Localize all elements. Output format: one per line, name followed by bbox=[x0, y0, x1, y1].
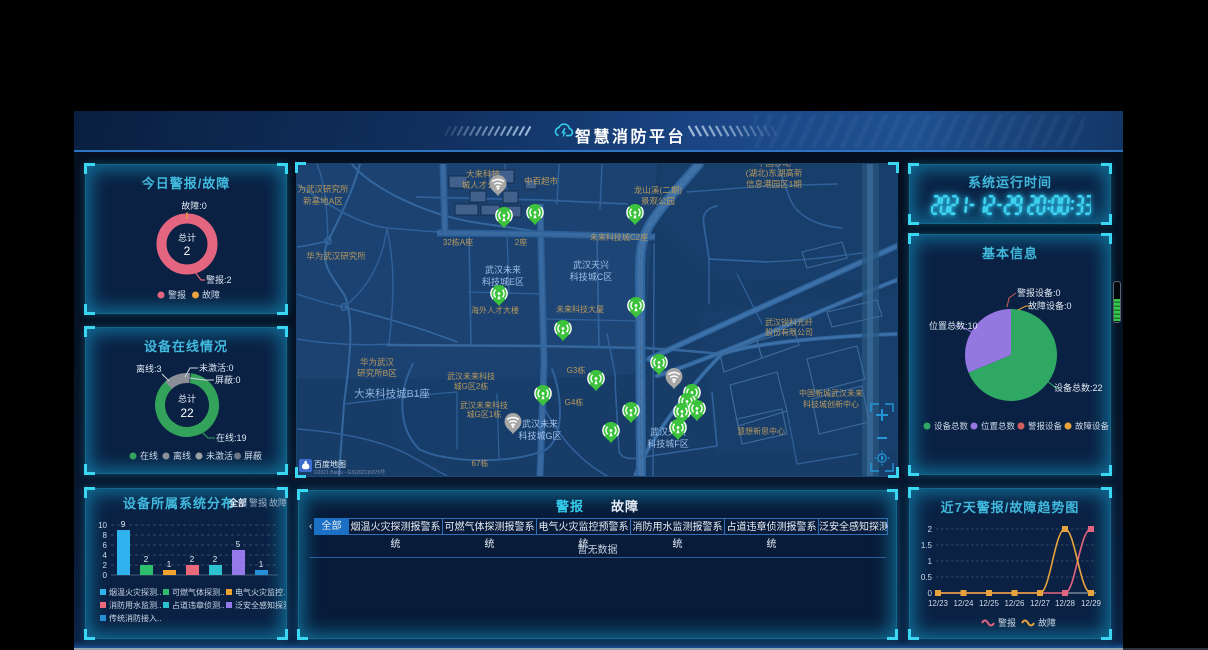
svg-text:2: 2 bbox=[928, 525, 933, 534]
svg-text:电气火灾监控..: 电气火灾监控.. bbox=[235, 587, 286, 597]
svg-text:2: 2 bbox=[184, 244, 191, 258]
svg-text:故障: 故障 bbox=[269, 497, 286, 508]
svg-text:8: 8 bbox=[103, 531, 108, 540]
svg-text:屏蔽: 屏蔽 bbox=[244, 450, 262, 461]
svg-text:6: 6 bbox=[103, 541, 108, 550]
svg-text:为武汉研究所: 为武汉研究所 bbox=[297, 184, 349, 194]
svg-text:0: 0 bbox=[928, 589, 933, 598]
svg-text:信息港园区1期: 信息港园区1期 bbox=[746, 179, 802, 189]
svg-text:离线:3: 离线:3 bbox=[136, 363, 162, 374]
svg-text:华为武汉研究所: 华为武汉研究所 bbox=[306, 251, 366, 261]
svg-text:位置总数:10: 位置总数:10 bbox=[929, 320, 978, 331]
svg-text:1.5: 1.5 bbox=[921, 541, 933, 550]
svg-text:2座: 2座 bbox=[515, 237, 527, 247]
svg-text:烟温火灾探测..: 烟温火灾探测.. bbox=[109, 587, 161, 597]
svg-text:武汉未来科技: 武汉未来科技 bbox=[460, 400, 508, 410]
svg-text:©2021 Baidu - GS(2021)6375号: ©2021 Baidu - GS(2021)6375号 bbox=[314, 469, 385, 476]
svg-text:科技城E区: 科技城E区 bbox=[482, 276, 524, 287]
svg-text:中百超市: 中百超市 bbox=[524, 176, 559, 186]
svg-text:城G区1栋: 城G区1栋 bbox=[467, 409, 502, 419]
svg-text:32栋A座: 32栋A座 bbox=[443, 237, 473, 247]
svg-text:占道违章侦测..: 占道违章侦测.. bbox=[172, 600, 224, 610]
svg-text:总计: 总计 bbox=[178, 232, 196, 243]
svg-text:传统消防接入..: 传统消防接入.. bbox=[109, 613, 161, 623]
svg-text:位置总数: 位置总数 bbox=[981, 421, 1016, 431]
svg-text:5: 5 bbox=[236, 540, 241, 549]
svg-text:12/24: 12/24 bbox=[953, 599, 974, 608]
svg-text:武汉未来: 武汉未来 bbox=[485, 264, 521, 275]
svg-text:12/29: 12/29 bbox=[1081, 599, 1102, 608]
svg-text:科技城G区: 科技城G区 bbox=[518, 430, 561, 441]
svg-text:科技城C区: 科技城C区 bbox=[570, 271, 613, 282]
svg-text:|: | bbox=[245, 498, 247, 508]
svg-text:22: 22 bbox=[180, 406, 194, 420]
svg-text:1: 1 bbox=[259, 560, 264, 569]
svg-text:未来科技大厦: 未来科技大厦 bbox=[556, 304, 604, 314]
svg-text:2: 2 bbox=[103, 561, 108, 570]
svg-text:警报设备: 警报设备 bbox=[1028, 421, 1063, 431]
svg-text:新基地A区: 新基地A区 bbox=[303, 196, 343, 206]
svg-text:设备总数:22: 设备总数:22 bbox=[1054, 382, 1103, 393]
svg-text:12/23: 12/23 bbox=[928, 599, 949, 608]
svg-text:12/28: 12/28 bbox=[1055, 599, 1076, 608]
svg-text:故障: 故障 bbox=[202, 289, 220, 300]
svg-text:大来科技城B1座: 大来科技城B1座 bbox=[354, 387, 430, 400]
svg-text:10: 10 bbox=[98, 521, 107, 530]
svg-text:G3栋: G3栋 bbox=[567, 365, 586, 375]
svg-text:2: 2 bbox=[190, 555, 195, 564]
svg-text:在线:19: 在线:19 bbox=[216, 432, 247, 443]
svg-text:消防用水监测..: 消防用水监测.. bbox=[109, 600, 161, 610]
svg-text:龙山溪(二期): 龙山溪(二期) bbox=[634, 185, 682, 195]
svg-text:武汉锐科光纤: 武汉锐科光纤 bbox=[765, 317, 813, 327]
svg-text:G4栋: G4栋 bbox=[565, 397, 584, 407]
svg-text:设备所属系统分布: 设备所属系统分布 bbox=[123, 496, 235, 511]
svg-text:华为武汉: 华为武汉 bbox=[360, 357, 395, 367]
svg-text:故障: 故障 bbox=[1038, 617, 1056, 628]
svg-text:12/25: 12/25 bbox=[979, 599, 1000, 608]
svg-text:12/26: 12/26 bbox=[1004, 599, 1025, 608]
svg-text:科技城F区: 科技城F区 bbox=[647, 438, 689, 449]
svg-text:研究所B区: 研究所B区 bbox=[357, 368, 397, 378]
svg-text:12/27: 12/27 bbox=[1030, 599, 1051, 608]
svg-text:未激活:0: 未激活:0 bbox=[199, 362, 234, 373]
svg-text:未激活: 未激活 bbox=[206, 450, 233, 461]
svg-text:9: 9 bbox=[121, 520, 126, 529]
svg-text:67栋: 67栋 bbox=[472, 458, 489, 468]
svg-text:屏蔽:0: 屏蔽:0 bbox=[215, 374, 241, 385]
svg-text:泛安全感知探测..: 泛安全感知探测.. bbox=[235, 600, 286, 610]
svg-text:警报设备:0: 警报设备:0 bbox=[1017, 287, 1061, 298]
svg-text:0: 0 bbox=[103, 571, 108, 580]
svg-text:故障:0: 故障:0 bbox=[181, 200, 207, 211]
svg-text:离线: 离线 bbox=[173, 450, 191, 461]
svg-text:总计: 总计 bbox=[178, 393, 196, 404]
svg-text:(湖北)东湖高新: (湖北)东湖高新 bbox=[746, 168, 803, 178]
svg-text:警报: 警报 bbox=[998, 617, 1016, 628]
svg-text:武汉未来科技: 武汉未来科技 bbox=[447, 371, 495, 381]
svg-text:1: 1 bbox=[167, 560, 172, 569]
svg-text:1: 1 bbox=[928, 557, 933, 566]
svg-text:武汉天兴: 武汉天兴 bbox=[573, 259, 609, 270]
svg-text:慧想新思中心: 慧想新思中心 bbox=[737, 426, 785, 436]
svg-text:警报:2: 警报:2 bbox=[206, 274, 232, 285]
svg-text:故障设备: 故障设备 bbox=[1075, 421, 1110, 431]
svg-text:海外人才大楼: 海外人才大楼 bbox=[471, 305, 519, 315]
svg-text:百度地图: 百度地图 bbox=[314, 459, 346, 469]
svg-text:2: 2 bbox=[213, 555, 218, 564]
svg-text:中国新城武汉未来: 中国新城武汉未来 bbox=[799, 388, 863, 398]
svg-text:未来科技城C2座: 未来科技城C2座 bbox=[590, 232, 648, 242]
svg-text:故障设备:0: 故障设备:0 bbox=[1028, 300, 1072, 311]
svg-text:武汉未来: 武汉未来 bbox=[522, 418, 558, 429]
svg-text:科技城创新中心: 科技城创新中心 bbox=[803, 399, 859, 409]
svg-text:0.5: 0.5 bbox=[921, 573, 933, 582]
svg-text:可燃气体探测..: 可燃气体探测.. bbox=[172, 587, 224, 597]
svg-text:|: | bbox=[265, 498, 267, 508]
svg-text:2: 2 bbox=[144, 555, 149, 564]
svg-text:景观公园: 景观公园 bbox=[641, 196, 675, 206]
svg-text:在线: 在线 bbox=[140, 450, 158, 461]
svg-text:警报: 警报 bbox=[168, 289, 186, 300]
svg-text:股份有限公司: 股份有限公司 bbox=[765, 327, 813, 337]
svg-text:城G区2栋: 城G区2栋 bbox=[454, 381, 489, 391]
svg-text:设备总数: 设备总数 bbox=[934, 421, 969, 431]
svg-text:4: 4 bbox=[103, 551, 108, 560]
